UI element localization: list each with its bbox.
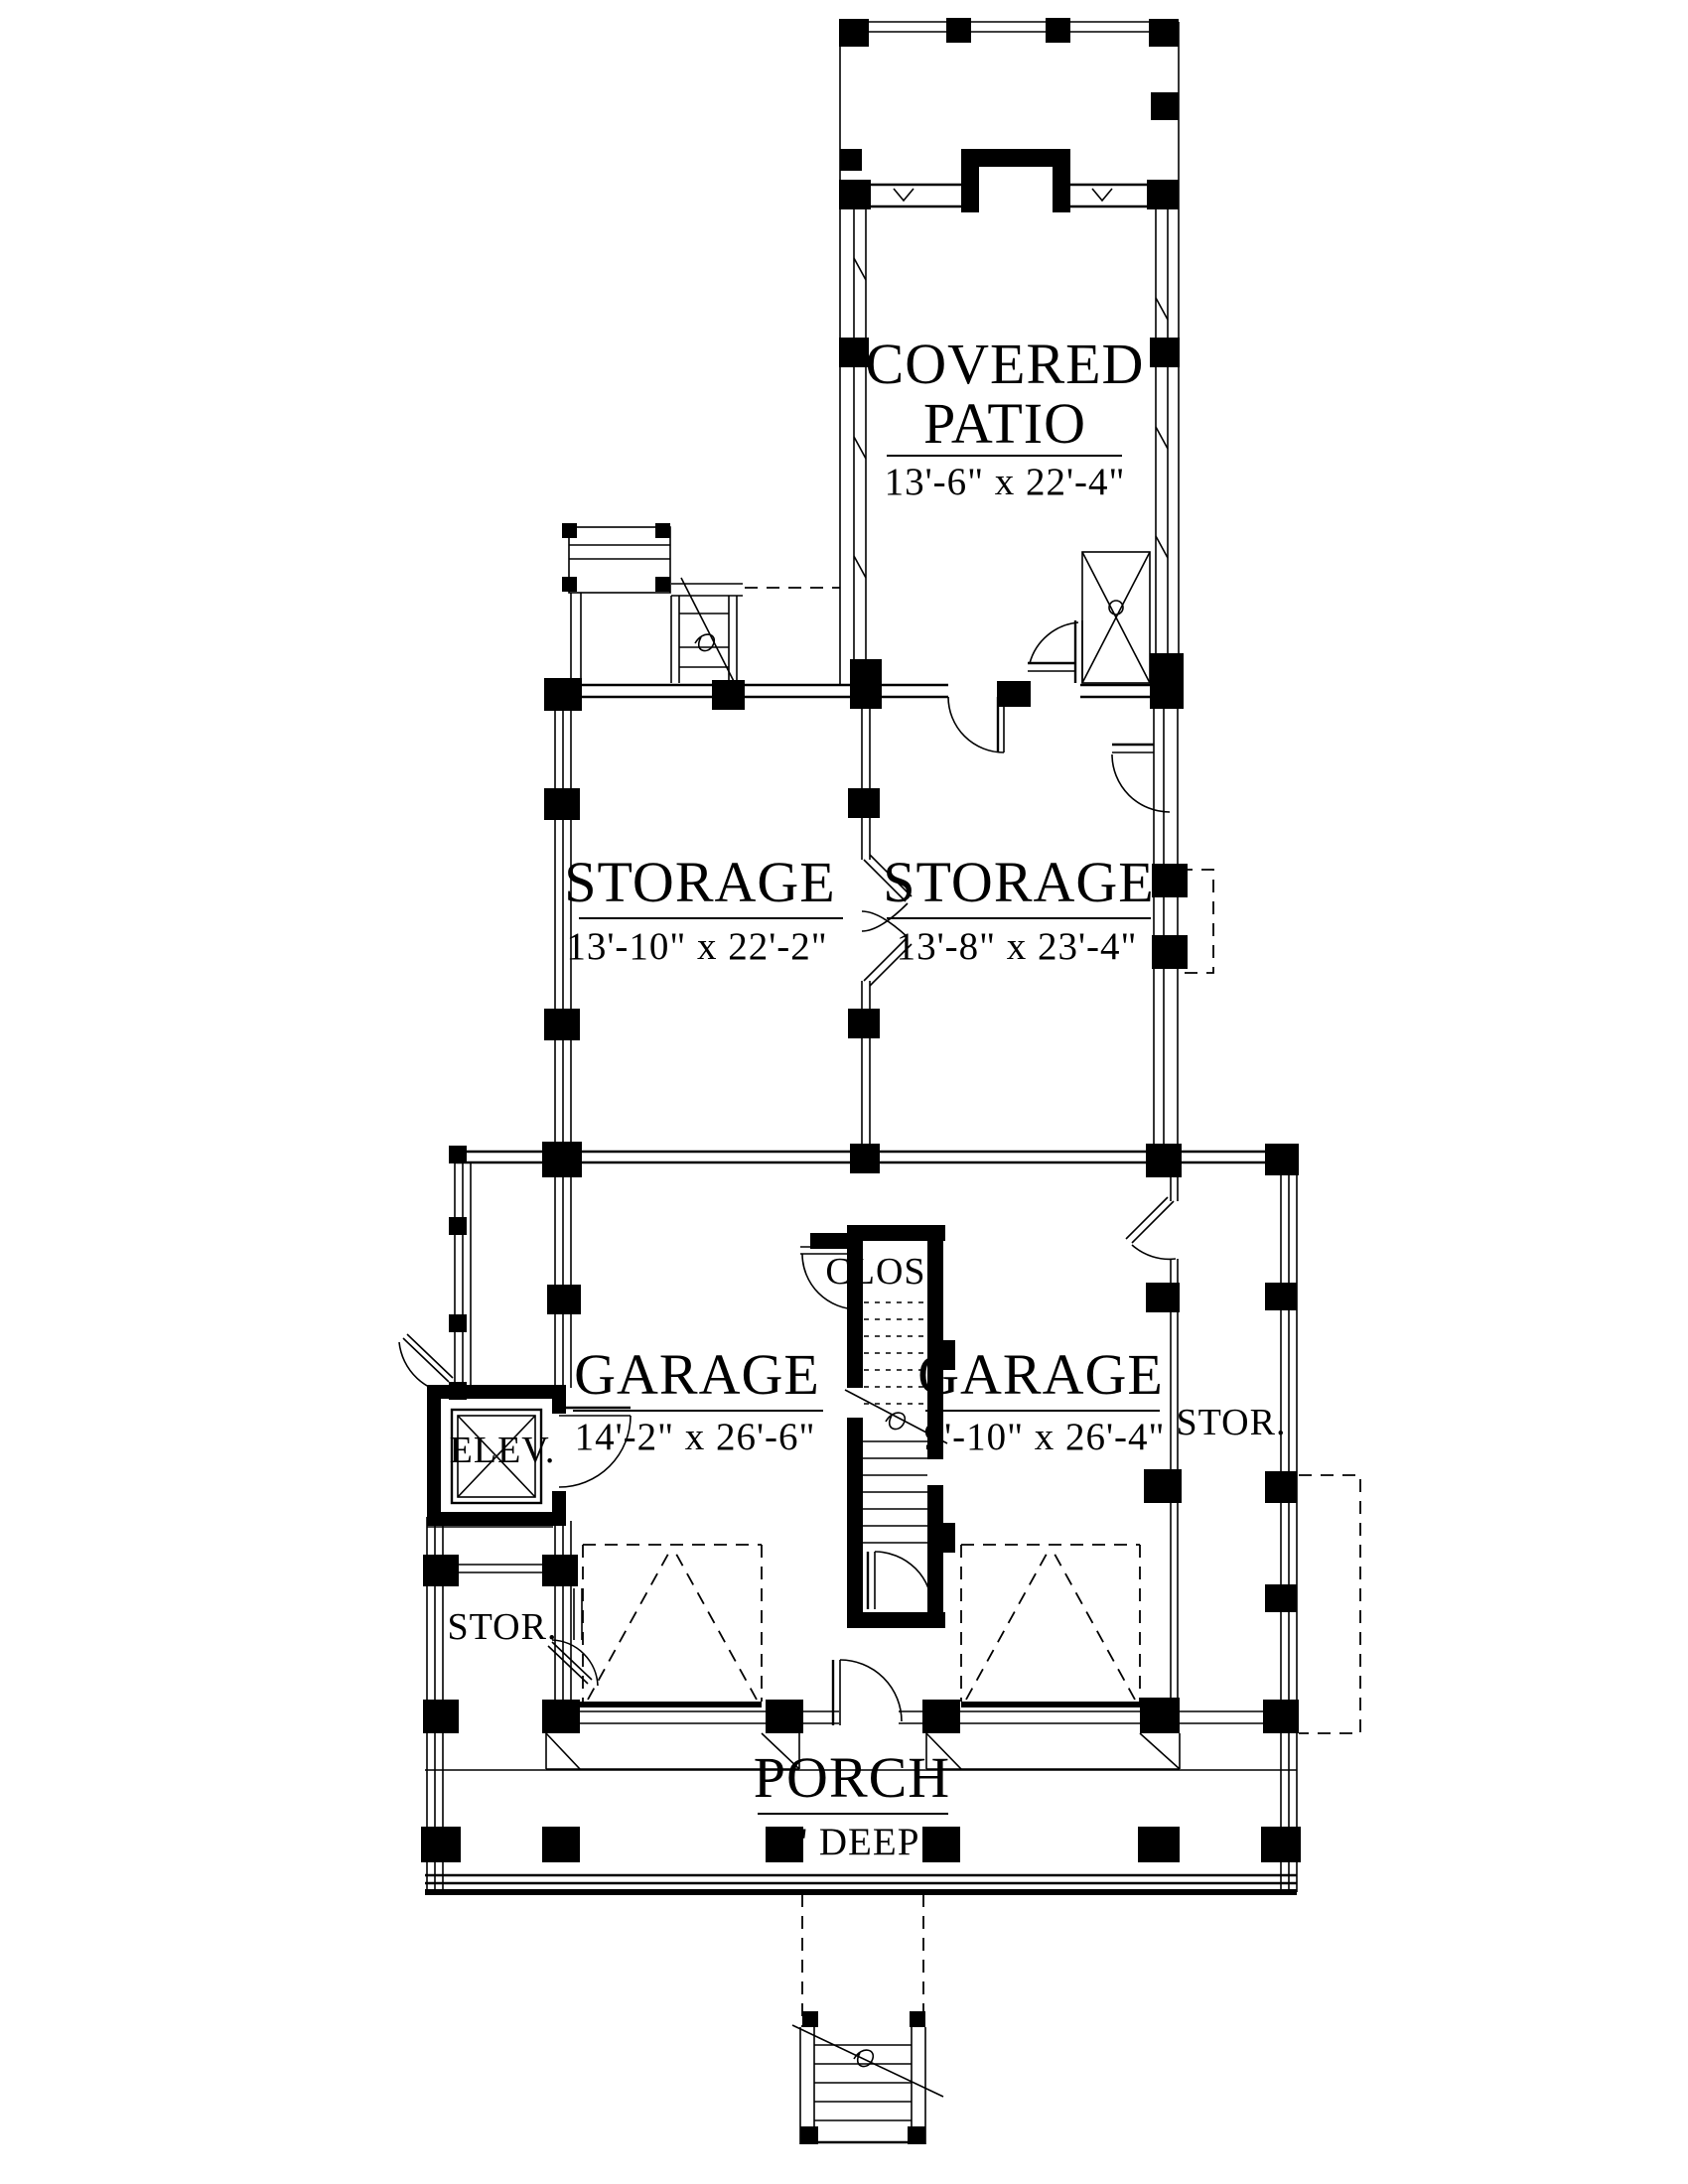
- garage-left-label: GARAGE: [574, 1346, 820, 1404]
- front-entry-door: [833, 1660, 902, 1725]
- garage-right-dims: 9'-10" x 26'-4": [924, 1418, 1166, 1456]
- garage-left-dims: 14'-2" x 26'-6": [575, 1418, 816, 1456]
- covered-patio-label-line2: PATIO: [923, 395, 1086, 453]
- garage-apron-right: [926, 1733, 1180, 1769]
- garage-left-underline: [573, 1410, 823, 1412]
- elevator-label: ELEV.: [450, 1432, 556, 1469]
- break-line-curl: [886, 1413, 905, 1429]
- covered-patio-underline: [887, 455, 1122, 457]
- stair-treads-lower: [863, 1441, 927, 1543]
- storage-right-label: STORAGE: [883, 854, 1154, 911]
- porch-underline: [758, 1813, 948, 1815]
- storage-left-label: STORAGE: [564, 854, 835, 911]
- floor-plan-page: COVERED PATIO 13'-6" x 22'-4" STORAGE 13…: [0, 0, 1688, 2184]
- garage-to-stor-door: [1126, 1197, 1176, 1259]
- closet-label: CLOS: [825, 1253, 925, 1291]
- garage-door-right-dashed: [961, 1545, 1140, 1702]
- storage-right-dims: 13'-8" x 23'-4": [897, 927, 1138, 966]
- garage-right-label: GARAGE: [917, 1346, 1164, 1404]
- stor-left-label: STOR.: [448, 1608, 558, 1646]
- garage-door-left-dashed: [583, 1545, 762, 1702]
- patio-door: [1028, 620, 1082, 683]
- storage-right-door: [948, 697, 1004, 752]
- stor-right-label: STOR.: [1177, 1404, 1287, 1441]
- covered-patio-label-line1: COVERED: [866, 336, 1145, 393]
- garage-right-underline: [925, 1410, 1160, 1412]
- porch-label: PORCH: [754, 1749, 950, 1807]
- garage-doors: [546, 1545, 1297, 1769]
- exterior-stair: [569, 527, 840, 699]
- covered-patio-dims: 13'-6" x 22'-4": [885, 463, 1126, 501]
- crossed-box: [1082, 552, 1150, 683]
- storage-side-door: [1112, 745, 1170, 812]
- porch-dims: 8' DEEP: [780, 1823, 920, 1861]
- dashed-pad-right: [1299, 1475, 1360, 1733]
- storage-right-underline: [887, 917, 1151, 919]
- storage-left-underline: [579, 917, 843, 919]
- storage-left-dims: 13'-10" x 22'-2": [566, 927, 827, 966]
- stair-bottom-door: [868, 1552, 932, 1609]
